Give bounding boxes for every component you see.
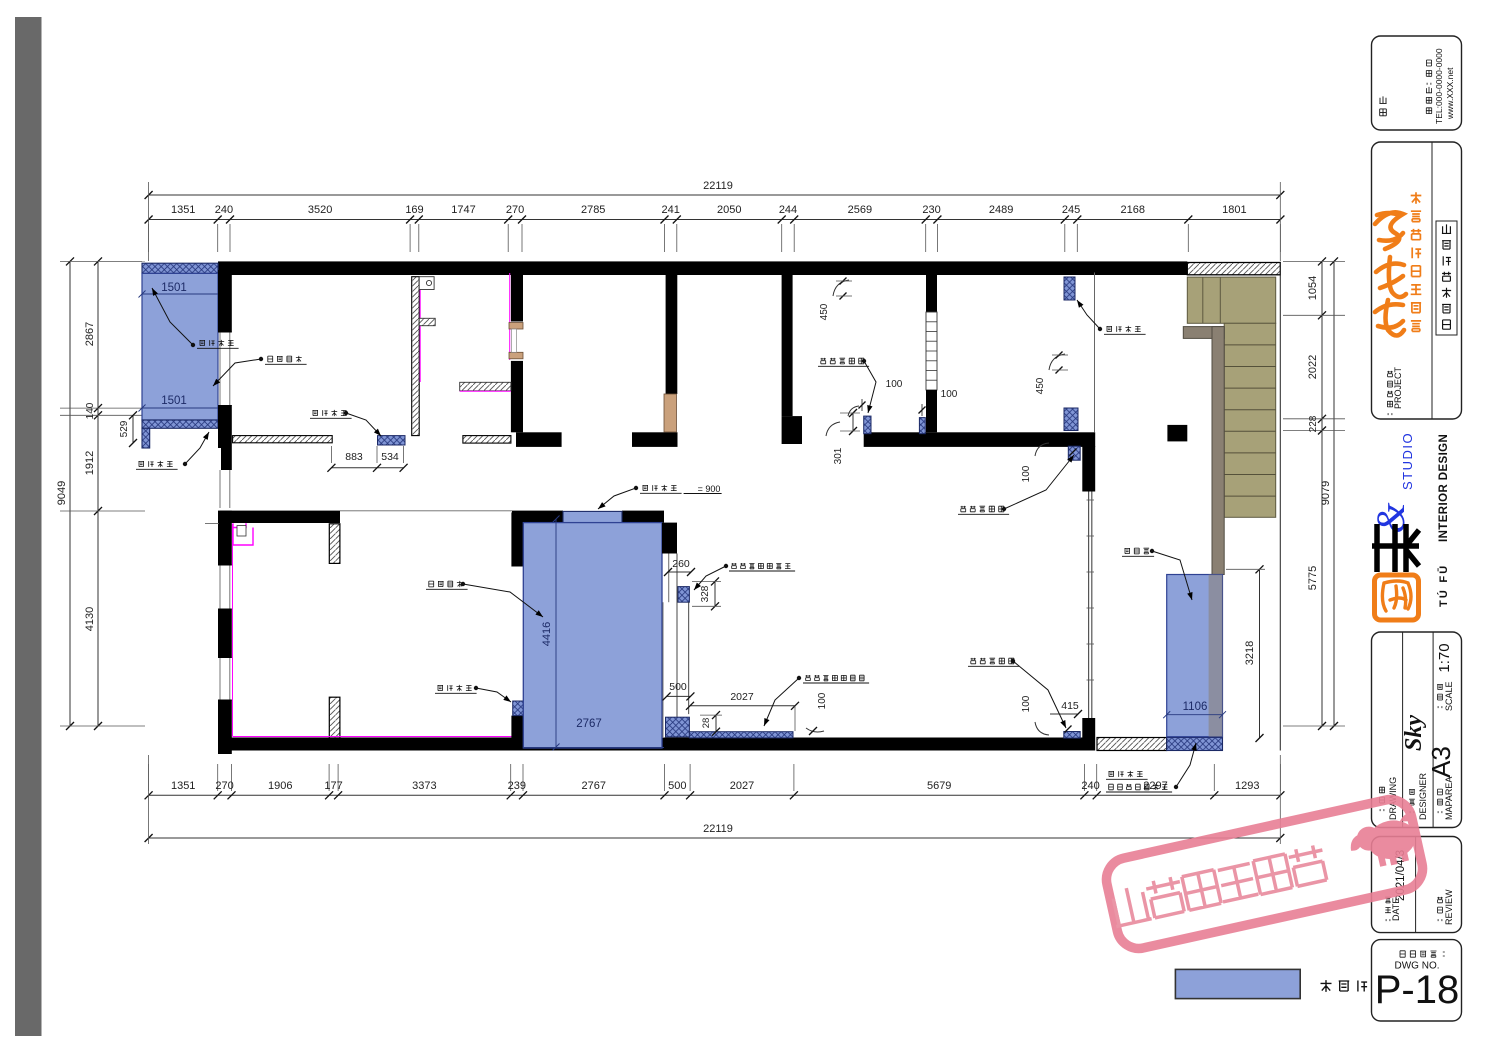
svg-text:415: 415: [1061, 700, 1079, 712]
svg-text:450: 450: [1035, 377, 1046, 394]
svg-text:9079: 9079: [1320, 481, 1332, 505]
svg-text:2027: 2027: [730, 780, 754, 792]
svg-text:100: 100: [1021, 465, 1032, 482]
svg-text:1801: 1801: [1222, 204, 1246, 216]
svg-text:2168: 2168: [1121, 204, 1145, 216]
svg-text:1351: 1351: [171, 780, 195, 792]
svg-text:= 900: = 900: [698, 484, 721, 494]
svg-text:INTERIOR DESIGN: INTERIOR DESIGN: [1438, 434, 1450, 542]
svg-text:5775: 5775: [1307, 566, 1319, 590]
svg-text:2489: 2489: [989, 204, 1013, 216]
svg-text:169: 169: [405, 204, 423, 216]
svg-text:4130: 4130: [84, 607, 96, 631]
svg-text:245: 245: [1062, 204, 1080, 216]
svg-text:100: 100: [941, 389, 958, 400]
svg-text:28: 28: [701, 718, 712, 729]
svg-text:4416: 4416: [541, 622, 553, 646]
svg-text:SCALE: SCALE: [1444, 681, 1454, 711]
svg-text:883: 883: [345, 451, 363, 463]
svg-text:328: 328: [700, 585, 711, 602]
svg-text:260: 260: [672, 558, 690, 570]
svg-text:9049: 9049: [56, 481, 68, 505]
svg-text:STUDIO: STUDIO: [1400, 432, 1415, 490]
svg-text:2867: 2867: [84, 322, 96, 346]
svg-text:Sky: Sky: [1401, 715, 1427, 751]
svg-text:3520: 3520: [308, 204, 332, 216]
svg-text:DESIGNER: DESIGNER: [1418, 772, 1428, 820]
svg-text:1293: 1293: [1235, 780, 1259, 792]
svg-text:1501: 1501: [161, 395, 187, 407]
svg-text:1106: 1106: [1183, 701, 1208, 713]
svg-text:2785: 2785: [581, 204, 605, 216]
svg-text:239: 239: [508, 780, 526, 792]
svg-text:240: 240: [1081, 780, 1099, 792]
svg-text:500: 500: [669, 681, 687, 693]
svg-text:529: 529: [119, 420, 130, 437]
svg-text:244: 244: [779, 204, 797, 216]
svg-text:450: 450: [819, 303, 830, 320]
svg-text:228: 228: [1308, 415, 1319, 432]
svg-text:1351: 1351: [171, 204, 195, 216]
svg-text:MAPAREA: MAPAREA: [1444, 777, 1454, 820]
svg-text:270: 270: [215, 780, 233, 792]
svg-text:www.XXX.net: www.XXX.net: [1445, 67, 1455, 120]
svg-text:2027: 2027: [730, 691, 754, 703]
svg-text:1:70: 1:70: [1436, 643, 1453, 672]
svg-text:534: 534: [381, 451, 399, 463]
svg-text:1912: 1912: [84, 451, 96, 475]
svg-text:DATE: DATE: [1391, 898, 1401, 921]
svg-text:1906: 1906: [268, 780, 292, 792]
svg-text:PROJECT: PROJECT: [1393, 366, 1403, 409]
svg-text:2022: 2022: [1307, 355, 1319, 379]
svg-text:100: 100: [1021, 695, 1032, 712]
svg-text:2050: 2050: [717, 204, 741, 216]
svg-text:100: 100: [886, 379, 903, 390]
svg-text:TEL:000-0000-0000: TEL:000-0000-0000: [1434, 48, 1444, 124]
svg-text:A3: A3: [1426, 746, 1456, 778]
svg-text:230: 230: [922, 204, 940, 216]
svg-text:TÚ FŪ: TÚ FŪ: [1437, 564, 1450, 607]
svg-text:22119: 22119: [703, 823, 733, 835]
svg-text:1054: 1054: [1307, 276, 1319, 300]
svg-text:301: 301: [833, 447, 844, 464]
svg-text:500: 500: [668, 780, 686, 792]
svg-text:3373: 3373: [412, 780, 436, 792]
svg-text:270: 270: [506, 204, 524, 216]
svg-text:3218: 3218: [1244, 641, 1256, 665]
svg-text:2767: 2767: [582, 780, 606, 792]
svg-text:2767: 2767: [576, 718, 602, 730]
svg-text:100: 100: [817, 692, 828, 709]
svg-text:140: 140: [85, 402, 96, 419]
svg-text:240: 240: [215, 204, 233, 216]
svg-text:22119: 22119: [703, 180, 733, 192]
svg-text:P-18: P-18: [1375, 968, 1460, 1012]
svg-text:177: 177: [324, 780, 342, 792]
svg-text:REVIEW: REVIEW: [1444, 889, 1454, 925]
svg-text:2569: 2569: [848, 204, 872, 216]
svg-text:1747: 1747: [451, 204, 475, 216]
svg-text:5679: 5679: [927, 780, 951, 792]
svg-text:1501: 1501: [161, 282, 187, 294]
svg-text:241: 241: [662, 204, 680, 216]
